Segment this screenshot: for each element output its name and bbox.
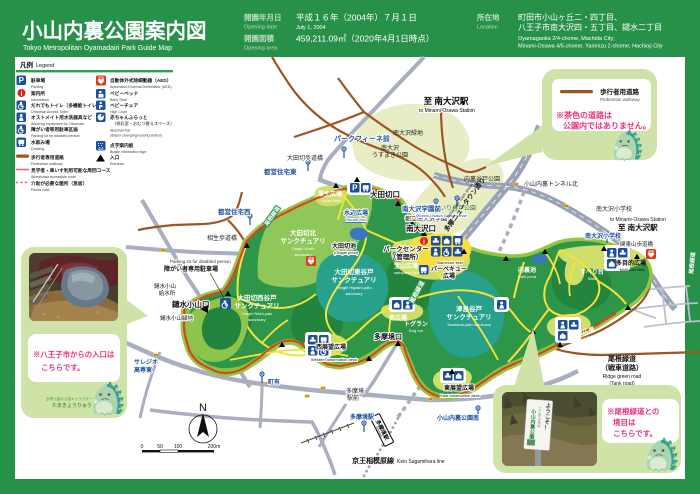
svg-text:Entrance: Entrance [110,162,124,166]
svg-text:駅前: 駅前 [347,394,359,402]
svg-text:to Minami-Osawa Station: to Minami-Osawa Station [419,108,475,114]
svg-text:町有: 町有 [268,378,280,386]
svg-text:July 1, 2004: July 1, 2004 [296,25,326,31]
svg-text:境目は: 境目は [613,417,636,427]
svg-text:案内所: 案内所 [30,90,45,97]
svg-text:大田切北: 大田切北 [290,228,317,237]
svg-text:介助が必要な箇所（急坂）: 介助が必要な箇所（急坂） [30,180,87,187]
svg-text:駐車場: 駐車場 [31,77,45,84]
svg-text:sanctuary: sanctuary [345,291,362,296]
svg-text:開園年月日: 開園年月日 [244,12,282,22]
svg-text:※茶色の道路は: ※茶色の道路は [556,110,612,120]
svg-text:Minami-Osawa 4/5-chome, Yarimi: Minami-Osawa 4/5-chome, Yarimizu 2-chome… [518,44,663,50]
svg-text:東展望広場: 東展望広場 [444,384,474,392]
svg-text:津島谷戸: 津島谷戸 [456,304,483,313]
svg-text:Baby Seat: Baby Seat [110,98,127,102]
svg-text:小山内裏公園案内図: 小山内裏公園案内図 [22,19,207,43]
svg-text:鑓水小山: 鑓水小山 [154,282,176,290]
svg-text:（戦車道路）: （戦車道路） [601,363,643,372]
svg-text:Parking lot for disabled perso: Parking lot for disabled person [31,134,80,138]
svg-text:京王相模原線: 京王相模原線 [352,456,394,465]
svg-text:水飲み場: 水飲み場 [30,139,50,146]
svg-text:都営住宅東: 都営住宅東 [263,167,297,176]
svg-text:Universal Access Toilet: Universal Access Toilet [31,110,68,114]
svg-text:西展望広場: 西展望広場 [316,343,346,351]
svg-text:相生歩道橋: 相生歩道橋 [207,234,237,242]
svg-text:サレジオ: サレジオ [134,359,158,366]
svg-text:（管理所）: （管理所） [390,252,423,261]
svg-text:バーベキュー: バーベキュー [431,265,467,273]
svg-text:Wheelchair accessible route: Wheelchair accessible route [31,175,76,179]
svg-text:障がい者等用駐車区画: 障がい者等用駐車区画 [31,126,78,133]
svg-text:広場: 広場 [443,272,455,280]
svg-text:トグラン: トグラン [404,320,428,328]
svg-text:見学者・車いす利用可能な周回コース: 見学者・車いす利用可能な周回コース [30,167,111,174]
svg-text:オストメイト用水洗器具など: オストメイト用水洗器具など [31,114,92,121]
svg-text:※八王子市からの入口は: ※八王子市からの入口は [33,350,115,359]
svg-text:Western observation deck: Western observation deck [311,357,357,362]
svg-text:多摩境駅: 多摩境駅 [350,413,375,421]
svg-text:Tokyo Metropolitan Oyamadairi: Tokyo Metropolitan Oyamadairi Park Guide… [23,45,172,52]
svg-text:点字案内板: 点字案内板 [110,142,134,149]
svg-text:Oyamagaoka 2/4-chome, Machida: Oyamagaoka 2/4-chome, Machida City; [518,36,615,42]
svg-text:Otagiri Higashi-yato: Otagiri Higashi-yato [336,285,372,290]
svg-text:（授乳室・おむつ替えスペース）: （授乳室・おむつ替えスペース） [112,120,174,127]
svg-text:Paved road: Paved road [31,188,49,192]
svg-text:八王子市南大沢四・五丁目、鑓水二丁目: 八王子市南大沢四・五丁目、鑓水二丁目 [518,22,662,32]
svg-text:(Otagiri pond): (Otagiri pond) [334,250,359,255]
svg-text:N: N [199,402,207,414]
svg-text:内裏池: 内裏池 [518,266,536,274]
svg-text:南広場: 南広場 [389,314,407,322]
svg-text:High Chair: High Chair [110,110,128,114]
svg-text:Washing equipment for Ostomate: Washing equipment for Ostomate [31,122,84,126]
svg-text:0: 0 [141,444,144,450]
svg-text:凡例: 凡例 [19,60,34,69]
svg-text:サンクチュアリ: サンクチュアリ [331,275,376,284]
svg-text:町田市小山ヶ丘二・四丁目、: 町田市小山ヶ丘二・四丁目、 [518,12,622,22]
svg-text:所在地: 所在地 [477,12,500,22]
svg-text:給水所: 給水所 [159,289,176,297]
svg-text:大田切歩道橋: 大田切歩道橋 [287,154,323,162]
svg-text:459,211.09㎡（2020年4月1日時点）: 459,211.09㎡（2020年4月1日時点） [296,34,434,44]
svg-text:たまきょうりゅう: たまきょうりゅう [52,402,92,409]
svg-text:南大沢: 南大沢 [381,144,399,152]
svg-text:Otagiri North: Otagiri North [292,246,315,251]
svg-text:多摩境: 多摩境 [346,387,364,395]
svg-text:Parking: Parking [31,85,43,89]
svg-text:南大沢小学校: 南大沢小学校 [596,205,632,213]
svg-text:赤ちゃんふらっと: 赤ちゃんふらっと [110,114,148,121]
svg-text:Otagiri Nishi-yato: Otagiri Nishi-yato [242,311,273,316]
svg-text:Slide: Slide [588,276,598,281]
svg-text:公園内ではありません。: 公園内ではありません。 [563,121,651,131]
svg-text:Opening area: Opening area [244,46,278,52]
svg-text:歩行者用道路: 歩行者用道路 [600,87,640,96]
svg-text:サンクチュアリ: サンクチュアリ [280,236,325,245]
svg-text:Pedestrian walkway: Pedestrian walkway [600,97,641,102]
svg-text:こちらです。: こちらです。 [613,429,657,438]
svg-text:南大沢緑地: 南大沢緑地 [393,129,423,137]
svg-text:satoyama field: satoyama field [394,270,420,275]
svg-text:だれでもトイレ〔多機能トイレ〕: だれでもトイレ〔多機能トイレ〕 [31,102,101,109]
svg-text:南大沢学園前: 南大沢学園前 [402,204,442,213]
svg-text:sanctuary: sanctuary [294,252,311,257]
svg-text:Tsushima-yato sanctuary: Tsushima-yato sanctuary [447,322,491,327]
svg-text:パークフィーネ前: パークフィーネ前 [334,134,390,143]
svg-text:大田切口: 大田切口 [370,189,400,199]
svg-text:Legend: Legend [36,63,54,69]
svg-text:都営住宅西: 都営住宅西 [217,207,251,216]
svg-text:大田切西谷戸: 大田切西谷戸 [238,293,278,302]
svg-text:小山内裏トンネル北: 小山内裏トンネル北 [524,180,578,188]
svg-text:Dairi pond: Dairi pond [518,274,536,279]
svg-text:多目的広場: 多目的広場 [616,259,646,267]
svg-text:Barbecue field: Barbecue field [437,260,463,265]
svg-text:200m: 200m [208,444,221,450]
svg-text:大田切池: 大田切池 [332,242,356,250]
svg-text:多摩境口: 多摩境口 [374,332,402,341]
svg-text:うすまき公園: うすまき公園 [372,152,408,159]
svg-text:Automated External Defibrillat: Automated External Defibrillator (AED) [110,85,172,89]
svg-text:サンクチュアリ: サンクチュアリ [234,301,279,310]
svg-text:小山内裏公園南: 小山内裏公園南 [436,414,479,422]
svg-text:パークセンター: パークセンター [383,244,429,253]
svg-text:すべり台: すべり台 [580,268,604,276]
svg-text:サンクチュアリ: サンクチュアリ [446,312,491,321]
svg-text:ベビーベッド: ベビーベッド [110,90,138,97]
svg-text:Opening date: Opening date [244,25,277,31]
svg-text:Keio Sagamihara line: Keio Sagamihara line [397,459,445,465]
svg-text:Mizube field: Mizube field [345,217,366,222]
svg-text:sanctuary: sanctuary [248,317,265,322]
svg-text:Akachan-flat: Akachan-flat [110,129,130,133]
svg-text:Suisei field: Suisei field [321,198,340,203]
svg-text:Location: Location [477,25,498,31]
svg-text:障がい者専用駐車場: 障がい者専用駐車場 [164,265,218,273]
svg-text:East observation deck: East observation deck [440,393,479,398]
svg-text:Parking lot for disabled perso: Parking lot for disabled person [170,259,231,264]
svg-text:※尾根緑道との: ※尾根緑道との [607,406,659,416]
svg-text:歩行者専用道路: 歩行者専用道路 [31,154,64,161]
svg-text:多摩公園の公認キャラクター: 多摩公園の公認キャラクター [46,396,93,401]
svg-text:大田切東谷戸: 大田切東谷戸 [335,267,375,276]
svg-text:宝山広場: 宝山広場 [394,262,418,270]
svg-text:Information: Information [31,98,49,102]
svg-text:Dog run: Dog run [409,328,423,333]
svg-text:南大沢小学校: 南大沢小学校 [585,232,622,240]
svg-text:至 南大沢駅: 至 南大沢駅 [424,96,469,106]
svg-text:自動体外式除細動器（AED）: 自動体外式除細動器（AED） [110,77,171,84]
svg-text:至 南大沢駅: 至 南大沢駅 [618,222,658,232]
svg-text:関東山歩道橋: 関東山歩道橋 [620,240,654,248]
svg-text:Ridge green road: Ridge green road [603,374,642,380]
svg-text:南大沢口: 南大沢口 [406,223,436,233]
svg-text:こちらです。: こちらです。 [41,363,84,372]
svg-text:開園面積: 開園面積 [244,33,274,43]
svg-text:平成１６年（2004年）７月１日: 平成１６年（2004年）７月１日 [296,13,417,23]
svg-text:鑓水小山緑地: 鑓水小山緑地 [160,314,194,322]
svg-text:100: 100 [174,444,183,450]
svg-text:ベビーチェア: ベビーチェア [110,102,138,109]
svg-text:Pedestrian walkway: Pedestrian walkway [31,162,63,166]
svg-text:翠生広場: 翠生広場 [318,190,342,198]
svg-text:Multi-use field: Multi-use field [620,267,645,272]
svg-text:水辺広場: 水辺広場 [344,209,368,217]
svg-text:尾根緑道: 尾根緑道 [607,354,636,363]
svg-text:50: 50 [157,444,163,450]
svg-text:Drinking: Drinking [31,147,44,151]
svg-text:Braille information sign: Braille information sign [110,150,146,154]
svg-text:高専東: 高専東 [134,366,152,374]
svg-text:(diaper changing/nursing stati: (diaper changing/nursing station) [110,134,162,138]
